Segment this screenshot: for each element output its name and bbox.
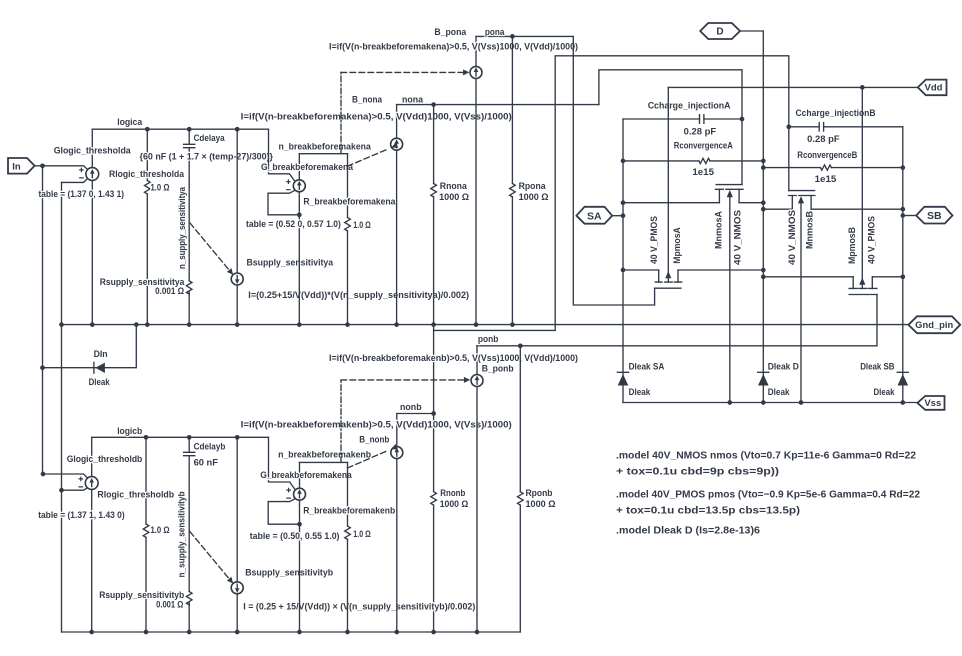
svg-text:0.28 pF: 0.28 pF (807, 134, 840, 144)
svg-text:Ccharge_injectionB: Ccharge_injectionB (796, 108, 876, 118)
svg-text:In: In (12, 162, 21, 173)
svg-text:Ccharge_injectionA: Ccharge_injectionA (648, 101, 731, 111)
svg-text:I = (0.25 + 15/V(Vdd)) × (V(n_: I = (0.25 + 15/V(Vdd)) × (V(n_supply_sen… (243, 601, 475, 611)
svg-text:pona: pona (485, 27, 505, 37)
svg-text:Dleak: Dleak (89, 377, 111, 387)
svg-text:Vss: Vss (924, 398, 941, 409)
svg-text:Glogic_thresholdb: Glogic_thresholdb (67, 454, 143, 464)
svg-text:{60 nF (1 + 1.7 × (temp-27)/3: {60 nF (1 + 1.7 × (temp-27)/300)} (140, 152, 274, 162)
svg-text:G_breakbeforemakena: G_breakbeforemakena (261, 162, 354, 172)
svg-text:table = (0.52 0, 0.57 1.0): table = (0.52 0, 0.57 1.0) (246, 219, 341, 229)
svg-text:Dleak: Dleak (629, 387, 651, 397)
svg-text:logicb: logicb (117, 426, 142, 436)
svg-text:1.0 Ω: 1.0 Ω (353, 220, 371, 230)
svg-text:Gnd_pin: Gnd_pin (915, 320, 953, 330)
svg-text:Glogic_thresholda: Glogic_thresholda (54, 145, 132, 155)
svg-text:1e15: 1e15 (692, 167, 714, 177)
svg-text:D: D (716, 26, 723, 37)
svg-text:Dleak: Dleak (768, 387, 790, 397)
svg-text:Bsupply_sensitivityb: Bsupply_sensitivityb (245, 567, 333, 577)
svg-text:1.0 Ω: 1.0 Ω (151, 525, 170, 535)
svg-text:Rpona: Rpona (519, 181, 547, 191)
svg-text:.model 40V_PMOS pmos (Vto=−0.9: .model 40V_PMOS pmos (Vto=−0.9 Kp=5e-6 G… (616, 489, 920, 500)
svg-text:MnmosB: MnmosB (804, 211, 814, 249)
svg-text:nona: nona (402, 94, 424, 104)
svg-text:SB: SB (927, 210, 942, 222)
svg-text:B_nona: B_nona (352, 94, 383, 104)
svg-text:0.28 pF: 0.28 pF (684, 127, 717, 137)
svg-text:1.0 Ω: 1.0 Ω (151, 182, 170, 192)
svg-text:nonb: nonb (400, 402, 422, 412)
svg-text:n_breakbeforemakenb: n_breakbeforemakenb (278, 449, 371, 459)
svg-text:.model Dleak D (Is=2.8e-13)6: .model Dleak D (Is=2.8e-13)6 (616, 525, 760, 536)
svg-text:+ tox=0.1u cbd=13.5p cbs=13.5p: + tox=0.1u cbd=13.5p cbs=13.5p) (616, 505, 800, 516)
svg-text:0.001 Ω: 0.001 Ω (155, 286, 184, 296)
svg-text:Dleak: Dleak (874, 387, 896, 397)
svg-text:Rsupply_sensitivityb: Rsupply_sensitivityb (99, 590, 184, 600)
svg-text:Cdelaya: Cdelaya (194, 133, 226, 143)
svg-text:R_breakbeforemakenb: R_breakbeforemakenb (303, 506, 395, 516)
svg-text:RconvergenceB: RconvergenceB (797, 150, 857, 160)
svg-text:n_supply_sensitivitya: n_supply_sensitivitya (177, 186, 187, 269)
svg-text:Dleak SB: Dleak SB (860, 362, 895, 372)
svg-text:RconvergenceA: RconvergenceA (674, 140, 733, 150)
svg-text:logica: logica (117, 117, 143, 127)
svg-text:0.001 Ω: 0.001 Ω (156, 600, 184, 610)
svg-text:B_nonb: B_nonb (359, 435, 389, 445)
svg-text:R_breakbeforemakena: R_breakbeforemakena (303, 196, 396, 206)
svg-text:1.0 Ω: 1.0 Ω (353, 529, 371, 539)
svg-text:Dleak D: Dleak D (768, 362, 799, 372)
svg-text:.model 40V_NMOS nmos (Vto=0.7: .model 40V_NMOS nmos (Vto=0.7 Kp=11e-6 G… (616, 451, 916, 462)
svg-text:SA: SA (587, 210, 602, 222)
svg-text:40 V_NMOS: 40 V_NMOS (733, 210, 743, 265)
svg-text:Rnonb: Rnonb (440, 488, 465, 498)
svg-text:MpmosB: MpmosB (847, 227, 857, 264)
svg-text:table = (1.37 1, 1.43 0): table = (1.37 1, 1.43 0) (38, 510, 125, 520)
svg-text:1000 Ω: 1000 Ω (526, 499, 557, 509)
svg-text:1e15: 1e15 (815, 174, 837, 184)
svg-text:Rponb: Rponb (526, 488, 553, 498)
svg-text:Cdelayb: Cdelayb (194, 442, 226, 452)
svg-text:40 V_PMOS: 40 V_PMOS (649, 216, 659, 264)
svg-text:1000 Ω: 1000 Ω (519, 192, 550, 202)
svg-text:I=if(V(n-breakbeforemakena)>0.: I=if(V(n-breakbeforemakena)>0.5, V(Vss)1… (329, 41, 578, 51)
svg-text:Dleak SA: Dleak SA (629, 362, 665, 372)
svg-text:G_breakbeforemakena: G_breakbeforemakena (260, 470, 352, 480)
svg-text:DIn: DIn (94, 349, 108, 359)
svg-text:table = (0.50, 0.55 1.0): table = (0.50, 0.55 1.0) (250, 531, 340, 541)
svg-text:Rnona: Rnona (440, 181, 468, 191)
svg-text:1000 Ω: 1000 Ω (439, 192, 470, 202)
svg-text:I=if(V(n-breakbeforemakenb)>0.: I=if(V(n-breakbeforemakenb)>0.5, V(Vss)1… (329, 353, 578, 363)
svg-text:Bsupply_sensitivitya: Bsupply_sensitivitya (247, 257, 334, 267)
svg-text:I=if(V(n-breakbeforemakenb)>0.: I=if(V(n-breakbeforemakenb)>0.5, V(Vdd)1… (241, 420, 512, 430)
svg-text:Rlogic_thresholdb: Rlogic_thresholdb (97, 490, 174, 500)
svg-text:I=(0.25+15/V(Vdd))*(V(n_supply: I=(0.25+15/V(Vdd))*(V(n_supply_sensitivi… (248, 290, 469, 300)
svg-text:Rlogic_thresholda: Rlogic_thresholda (109, 169, 185, 179)
svg-text:1000 Ω: 1000 Ω (440, 499, 469, 509)
svg-text:60 nF: 60 nF (194, 458, 219, 468)
svg-text:I=if(V(n-breakbeforemakena)>0.: I=if(V(n-breakbeforemakena)>0.5, V(Vdd)1… (241, 112, 512, 122)
svg-text:+ tox=0.1u cbd=9p cbs=9p)): + tox=0.1u cbd=9p cbs=9p)) (616, 467, 779, 478)
svg-text:B_pona: B_pona (434, 27, 467, 37)
svg-text:MpmosA: MpmosA (672, 227, 682, 264)
svg-text:B_ponb: B_ponb (482, 363, 514, 373)
svg-text:MnmosA: MnmosA (713, 211, 723, 249)
svg-text:ponb: ponb (478, 334, 499, 344)
svg-text:40 V_PMOS: 40 V_PMOS (867, 216, 877, 264)
svg-text:n_supply_sensitivityb: n_supply_sensitivityb (176, 491, 186, 577)
svg-text:table = (1.37 0, 1.43 1): table = (1.37 0, 1.43 1) (39, 189, 125, 199)
svg-text:n_breakbeforemakena: n_breakbeforemakena (279, 142, 372, 152)
svg-text:40 V_NMOS: 40 V_NMOS (787, 210, 797, 265)
svg-text:Vdd: Vdd (925, 83, 943, 94)
